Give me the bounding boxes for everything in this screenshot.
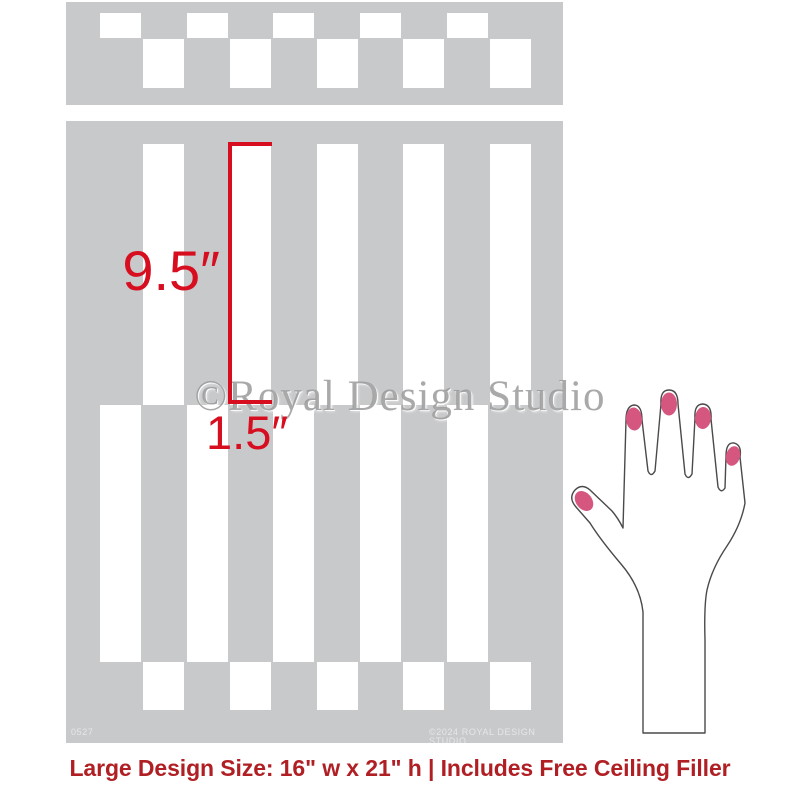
design-size-caption: Large Design Size: 16" w x 21" h | Inclu…: [0, 755, 800, 782]
stencil-sku-fineprint: 0527: [71, 728, 93, 737]
middle-nail-icon: [661, 393, 677, 416]
copyright-fineprint: ©2024 ROYAL DESIGN STUDIO: [429, 728, 561, 746]
hand-scale-illustration: [0, 0, 800, 800]
product-image: ©Royal Design Studio 9.5″ 1.5″ 0527 ©202…: [0, 0, 800, 800]
hand-outline: [572, 390, 745, 733]
